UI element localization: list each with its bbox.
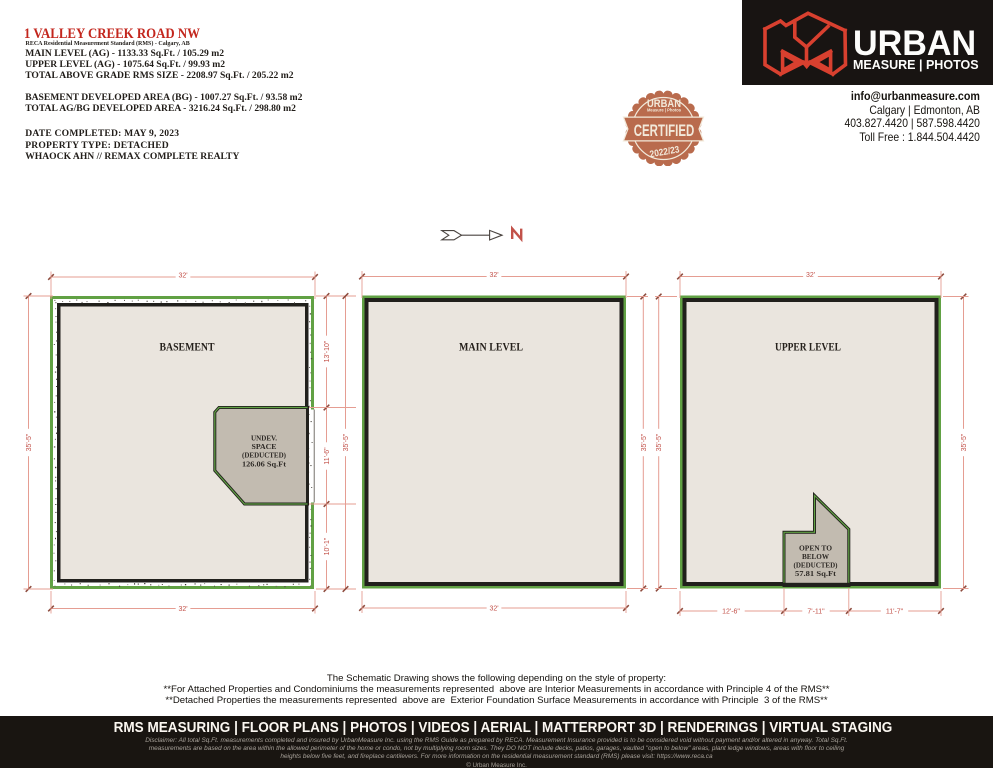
svg-text:OPEN TO: OPEN TO: [799, 545, 832, 553]
svg-text:126.06 Sq.Ft: 126.06 Sq.Ft: [242, 460, 287, 468]
svg-text:35'-5": 35'-5": [641, 433, 648, 451]
svg-text:13'-10": 13'-10": [324, 340, 331, 362]
svg-text:57.81 Sq.Ft: 57.81 Sq.Ft: [795, 570, 837, 578]
svg-text:MAIN LEVEL: MAIN LEVEL: [459, 342, 523, 354]
svg-text:10'-1": 10'-1": [324, 537, 331, 555]
svg-text:32': 32': [806, 272, 815, 279]
svg-text:32': 32': [178, 273, 187, 280]
svg-text:BASEMENT: BASEMENT: [160, 342, 215, 354]
svg-text:BELOW: BELOW: [802, 553, 830, 561]
svg-text:35'-5": 35'-5": [961, 433, 968, 451]
svg-text:UNDEV.: UNDEV.: [251, 435, 277, 443]
svg-text:35'-5": 35'-5": [26, 433, 33, 451]
svg-text:35'-5": 35'-5": [343, 433, 350, 451]
svg-text:12'-6": 12'-6": [722, 609, 740, 616]
svg-text:(DEDUCTED): (DEDUCTED): [242, 452, 287, 460]
svg-text:11'-6": 11'-6": [324, 447, 331, 465]
svg-text:35'-5": 35'-5": [656, 433, 663, 451]
svg-text:SPACE: SPACE: [252, 443, 277, 451]
svg-text:32': 32': [489, 606, 498, 613]
svg-text:(DEDUCTED): (DEDUCTED): [794, 562, 839, 570]
svg-text:32': 32': [178, 606, 187, 613]
svg-text:UPPER LEVEL: UPPER LEVEL: [775, 342, 841, 354]
svg-text:32': 32': [489, 272, 498, 279]
svg-text:11'-7": 11'-7": [886, 609, 904, 616]
svg-text:7'-11": 7'-11": [807, 609, 825, 616]
